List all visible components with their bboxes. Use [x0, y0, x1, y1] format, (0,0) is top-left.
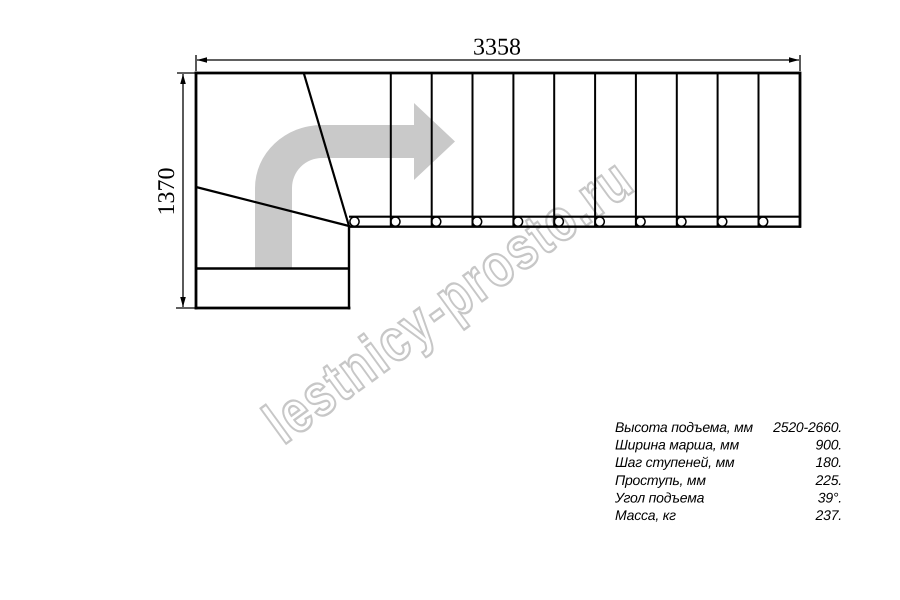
svg-text:2520-2660.: 2520-2660. [772, 419, 842, 435]
svg-text:900.: 900. [816, 437, 842, 453]
svg-text:Ширина марша, мм: Ширина марша, мм [615, 437, 740, 453]
svg-text:39°.: 39°. [818, 489, 842, 505]
svg-text:Масса, кг: Масса, кг [615, 507, 676, 523]
svg-text:lestnicy-prosto.ru: lestnicy-prosto.ru [253, 146, 646, 457]
svg-text:237.: 237. [815, 507, 842, 523]
svg-text:1370: 1370 [154, 168, 180, 216]
svg-text:Высота подъема, мм: Высота подъема, мм [615, 419, 754, 435]
svg-text:Проступь, мм: Проступь, мм [615, 472, 706, 488]
svg-text:Шаг ступеней, мм: Шаг ступеней, мм [615, 454, 735, 470]
svg-text:Угол подъема: Угол подъема [614, 489, 705, 505]
svg-text:180.: 180. [816, 454, 842, 470]
svg-text:3358: 3358 [473, 35, 521, 61]
svg-text:225.: 225. [815, 472, 842, 488]
